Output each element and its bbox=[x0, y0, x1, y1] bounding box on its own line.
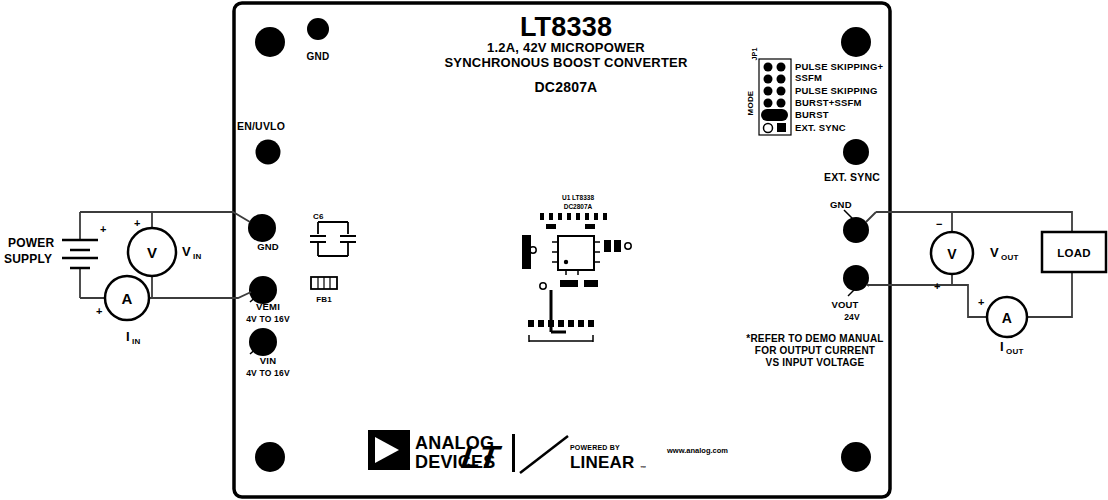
title-subtitle-1: 1.2A, 42V MICROPOWER bbox=[487, 40, 645, 55]
iout-meter-label: I bbox=[1000, 339, 1004, 354]
load-box: LOAD bbox=[1042, 232, 1106, 272]
c6-label: C6 bbox=[313, 212, 324, 221]
linear-text: LINEAR bbox=[570, 453, 634, 472]
vout-value: 24V bbox=[844, 312, 860, 322]
jumper-name: MODE bbox=[746, 90, 755, 115]
demo-board-connection-diagram: GND LT8338 1.2A, 42V MICROPOWER SYNCHRON… bbox=[0, 0, 1108, 500]
vout-voltmeter: V − + V OUT bbox=[931, 212, 1019, 292]
vemi-range: 4V TO 16V bbox=[246, 314, 290, 324]
fb1-label: FB1 bbox=[316, 295, 332, 304]
jumper-pos-4: BURST bbox=[795, 109, 829, 120]
analog-devices-logo-icon bbox=[368, 430, 410, 470]
mounting-hole-bottom-left bbox=[255, 442, 285, 472]
vin-meter-plus: + bbox=[134, 217, 141, 229]
lt-script: LT bbox=[459, 439, 503, 475]
gnd-top-turret bbox=[307, 18, 329, 40]
powered-by-text: POWERED BY bbox=[570, 444, 620, 451]
jumper-pos-5: EXT. SYNC bbox=[795, 122, 846, 133]
jumper-pos-0: PULSE SKIPPING+ bbox=[795, 61, 884, 72]
iout-meter-letter: A bbox=[1002, 310, 1012, 326]
gnd-left-turret bbox=[248, 214, 276, 242]
ext-sync-turret bbox=[843, 139, 869, 165]
demo-manual-note: *REFER TO DEMO MANUAL FOR OUTPUT CURRENT… bbox=[746, 333, 883, 368]
power-supply-label-1: POWER bbox=[8, 236, 54, 250]
title-part: LT8338 bbox=[520, 12, 612, 42]
battery-icon: + bbox=[62, 212, 107, 298]
mounting-hole-top-right bbox=[841, 27, 871, 57]
website-text: www.analog.com bbox=[666, 446, 728, 455]
iout-meter-label-sub: OUT bbox=[1006, 347, 1024, 356]
iin-meter-label: I bbox=[126, 329, 130, 344]
vout-meter-plus: + bbox=[934, 280, 941, 292]
jumper-pos-1: SSFM bbox=[795, 72, 822, 83]
ic-silkscreen-line2: DC2807A bbox=[564, 203, 593, 210]
vin-meter-label: V bbox=[182, 244, 191, 259]
iin-ammeter: A + I IN bbox=[96, 276, 149, 346]
battery-plus: + bbox=[100, 223, 107, 235]
gnd-right-label: GND bbox=[830, 199, 852, 210]
jumper-pos-3: BURST+SSFM bbox=[795, 97, 862, 108]
logo-divider bbox=[512, 434, 515, 472]
vin-range: 4V TO 16V bbox=[246, 368, 290, 378]
gnd-right-turret bbox=[843, 217, 869, 243]
mounting-hole-top-left bbox=[255, 27, 285, 57]
power-supply-circuit: POWER SUPPLY + V + − V IN A + I IN bbox=[4, 212, 251, 346]
jumper-shunt bbox=[761, 109, 788, 121]
vout-turret bbox=[843, 265, 869, 291]
ext-sync-label: EXT. SYNC bbox=[824, 171, 880, 183]
jumper-designator: JP1 bbox=[751, 47, 758, 60]
note-line-2: FOR OUTPUT CURRENT bbox=[755, 345, 875, 356]
vout-meter-label-sub: OUT bbox=[1001, 253, 1019, 262]
title-subtitle-2: SYNCHRONOUS BOOST CONVERTER bbox=[444, 55, 687, 70]
vin-meter-letter: V bbox=[147, 244, 157, 261]
note-line-3: VS INPUT VOLTAGE bbox=[766, 357, 865, 368]
note-line-1: *REFER TO DEMO MANUAL bbox=[746, 333, 883, 344]
vemi-label: VEMI bbox=[256, 301, 280, 312]
jumper-pin1-square bbox=[777, 123, 786, 132]
power-supply-label-2: SUPPLY bbox=[4, 252, 52, 266]
vin-meter-label-sub: IN bbox=[193, 252, 201, 261]
en-uvlo-turret bbox=[256, 140, 281, 165]
en-uvlo-label: EN/UVLO bbox=[237, 120, 285, 132]
gnd-left-label: GND bbox=[257, 241, 279, 252]
vout-meter-minus: − bbox=[936, 218, 943, 230]
ic-silkscreen-line1: U1 LT8338 bbox=[562, 194, 594, 201]
load-circuit: V − + V OUT A + I OUT LOAD bbox=[866, 212, 1106, 356]
iin-meter-plus: + bbox=[96, 305, 103, 317]
iout-ammeter: A + I OUT bbox=[978, 296, 1027, 356]
diagram-canvas: GND LT8338 1.2A, 42V MICROPOWER SYNCHRON… bbox=[0, 0, 1108, 500]
load-label: LOAD bbox=[1057, 247, 1090, 259]
iin-meter-letter: A bbox=[121, 290, 132, 307]
mounting-hole-bottom-right bbox=[841, 442, 871, 472]
linear-tm: ™ bbox=[640, 465, 646, 471]
jumper-pos-2: PULSE SKIPPING bbox=[795, 85, 878, 96]
gnd-top-label: GND bbox=[307, 51, 330, 62]
vin-label: VIN bbox=[260, 355, 276, 366]
title-demo-id: DC2807A bbox=[535, 79, 598, 95]
iout-meter-plus: + bbox=[978, 296, 985, 308]
ic-body bbox=[558, 236, 594, 270]
iin-meter-label-sub: IN bbox=[132, 337, 140, 346]
vout-label: VOUT bbox=[831, 299, 858, 310]
vout-meter-label: V bbox=[990, 245, 999, 260]
vout-meter-letter: V bbox=[947, 246, 957, 262]
